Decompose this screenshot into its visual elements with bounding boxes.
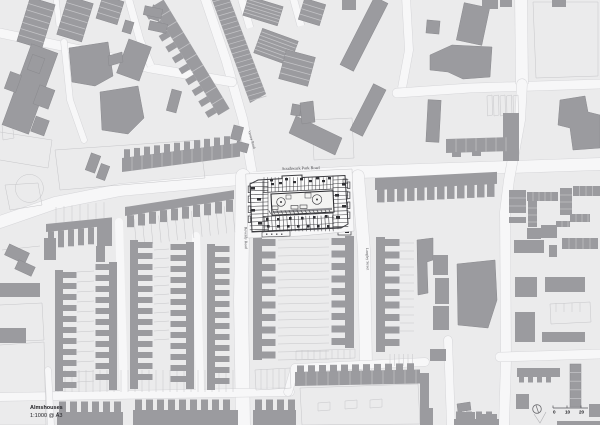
- svg-text:20: 20: [579, 410, 585, 415]
- svg-text:10: 10: [565, 410, 571, 415]
- svg-text:Southwark Park Road: Southwark Park Road: [282, 165, 321, 171]
- svg-text:0: 0: [553, 410, 556, 415]
- svg-text:1:1000 @ A3: 1:1000 @ A3: [30, 413, 62, 419]
- svg-text:Reverdy Road: Reverdy Road: [244, 227, 248, 249]
- svg-text:Langley Street: Langley Street: [365, 248, 370, 271]
- svg-text:Almshouses: Almshouses: [30, 405, 63, 411]
